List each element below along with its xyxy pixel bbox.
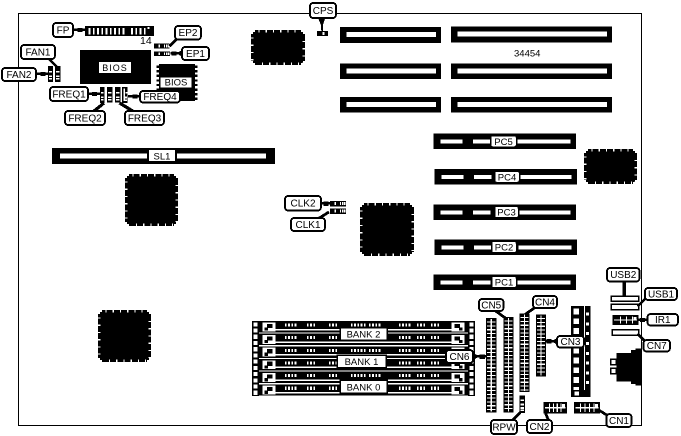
svg-text:CN2: CN2 — [529, 422, 549, 433]
svg-text:FP: FP — [57, 25, 70, 36]
svg-text:CLK2: CLK2 — [290, 199, 315, 210]
svg-text:EP2: EP2 — [179, 28, 198, 39]
svg-text:14: 14 — [140, 35, 152, 47]
svg-text:IR1: IR1 — [655, 315, 671, 326]
svg-text:CN7: CN7 — [647, 341, 667, 352]
svg-text:CPS: CPS — [313, 6, 334, 17]
svg-text:PC2: PC2 — [495, 243, 513, 254]
svg-text:USB1: USB1 — [648, 289, 675, 300]
svg-text:BIOS: BIOS — [165, 78, 188, 89]
svg-text:BANK 1: BANK 1 — [345, 357, 379, 368]
svg-text:FREQ2: FREQ2 — [68, 113, 102, 124]
svg-text:CN1: CN1 — [609, 416, 629, 427]
svg-text:PC5: PC5 — [494, 137, 512, 148]
svg-text:PC1: PC1 — [495, 278, 513, 289]
svg-text:RPW: RPW — [492, 422, 516, 433]
svg-text:EP1: EP1 — [186, 49, 205, 60]
svg-text:FREQ1: FREQ1 — [52, 89, 86, 100]
svg-text:PC3: PC3 — [497, 208, 515, 219]
svg-text:FAN2: FAN2 — [6, 70, 31, 81]
svg-text:CN5: CN5 — [481, 300, 501, 311]
svg-text:FREQ4: FREQ4 — [143, 92, 177, 103]
svg-text:BANK 2: BANK 2 — [347, 330, 381, 341]
svg-text:FREQ3: FREQ3 — [128, 113, 162, 124]
svg-text:PC4: PC4 — [498, 172, 516, 183]
svg-text:BANK 0: BANK 0 — [347, 382, 381, 393]
svg-text:CN6: CN6 — [449, 352, 469, 363]
svg-text:BIOS: BIOS — [102, 63, 128, 73]
svg-text:CLK1: CLK1 — [295, 220, 320, 231]
svg-text:FAN1: FAN1 — [25, 47, 50, 58]
svg-text:USB2: USB2 — [610, 270, 637, 281]
svg-text:CN4: CN4 — [535, 297, 555, 308]
svg-text:CN3: CN3 — [560, 337, 580, 348]
svg-text:SL1: SL1 — [154, 151, 171, 162]
svg-text:34454: 34454 — [514, 49, 540, 60]
